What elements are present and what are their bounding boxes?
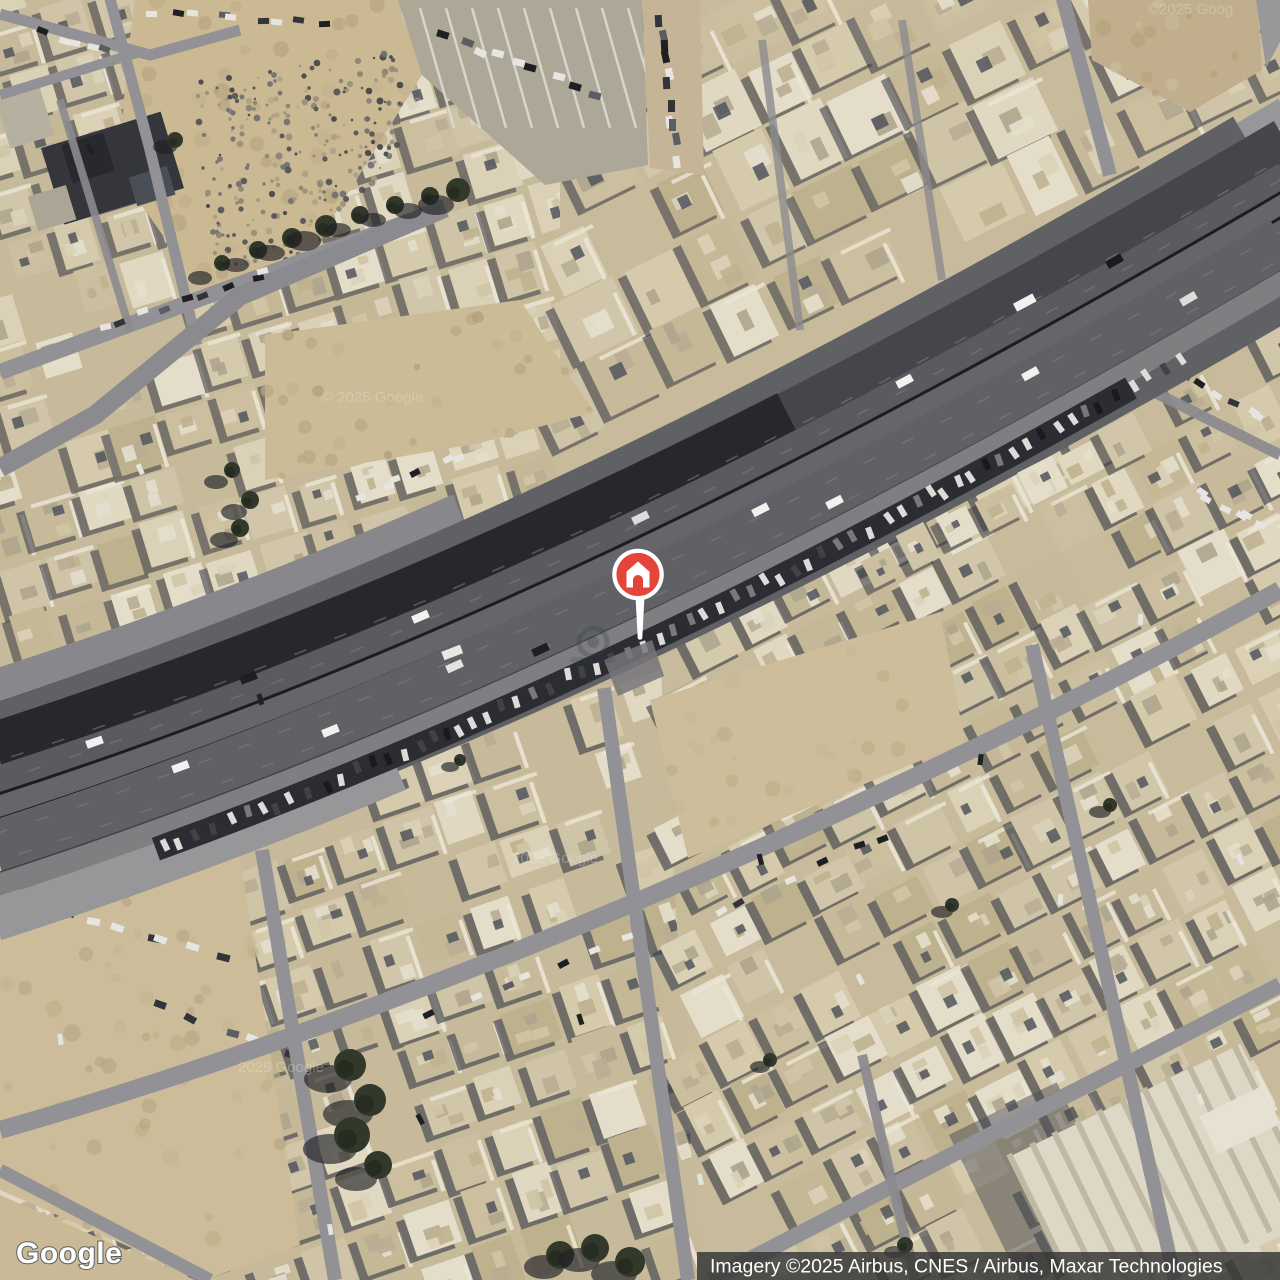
svg-text:2025 Google: 2025 Google (238, 1059, 324, 1076)
svg-text:2025 Google: 2025 Google (512, 850, 598, 867)
svg-text:Google: Google (16, 1237, 122, 1270)
svg-text:© 2025 Google: © 2025 Google (322, 389, 423, 406)
svg-text:© 2025: © 2025 (390, 95, 439, 112)
svg-text:©2025 Goog: ©2025 Goog (1148, 1, 1233, 18)
svg-text:Imagery ©2025 Airbus, CNES / A: Imagery ©2025 Airbus, CNES / Airbus, Max… (710, 1256, 1223, 1278)
